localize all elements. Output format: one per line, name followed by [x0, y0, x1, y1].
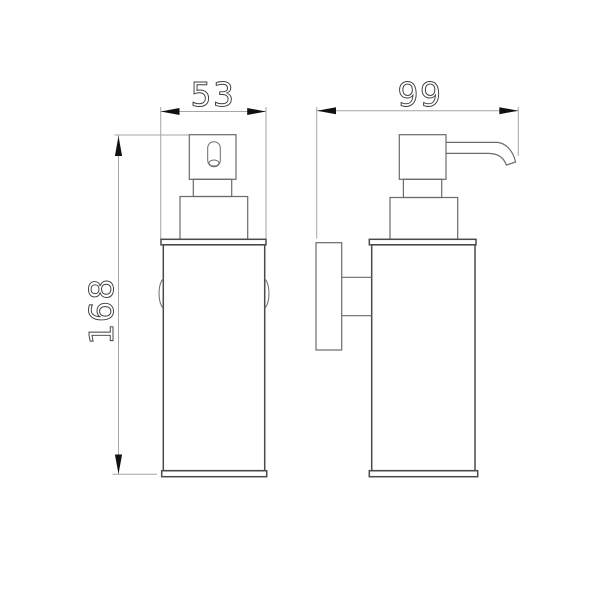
pump-collar — [180, 197, 248, 240]
pump-head-slot — [208, 142, 221, 167]
bottle-body — [372, 245, 475, 471]
pump-head — [399, 135, 446, 180]
pump-neck — [193, 179, 231, 196]
arrowhead-right — [499, 107, 518, 114]
dimension-front-width: 53 — [161, 75, 266, 240]
technical-drawing: 53 99 168 — [0, 0, 600, 600]
arrowhead-left — [317, 107, 336, 114]
top-plate — [369, 239, 476, 245]
dimension-label-front-width: 53 — [191, 75, 236, 114]
pump-spout — [446, 142, 516, 165]
base-plate — [162, 471, 267, 477]
pump-head-slot-hole — [209, 160, 219, 166]
bottle-body — [163, 245, 264, 471]
arrowhead-bottom — [115, 455, 122, 475]
dimension-label-side-depth: 99 — [398, 75, 443, 114]
top-plate — [161, 239, 266, 245]
base-plate — [369, 471, 477, 477]
side-view — [316, 135, 516, 477]
drawing-canvas: 53 99 168 — [0, 0, 600, 600]
dimension-side-depth: 99 — [317, 75, 519, 239]
arrowhead-top — [115, 136, 122, 156]
pump-collar — [390, 198, 458, 240]
dimension-label-overall-height: 168 — [82, 277, 121, 345]
wall-mount-plate — [316, 243, 342, 350]
pump-neck — [403, 179, 441, 197]
dimension-overall-height: 168 — [82, 135, 189, 474]
arrowhead-right — [247, 108, 266, 115]
front-view — [159, 135, 269, 477]
arrowhead-left — [161, 108, 180, 115]
